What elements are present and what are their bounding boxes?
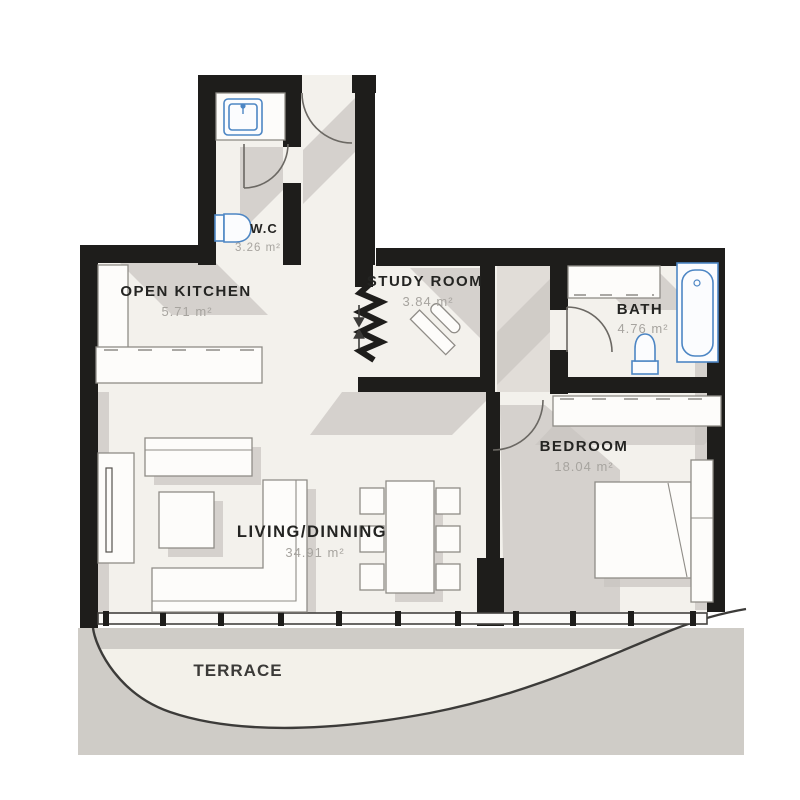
wardrobe [553,396,721,426]
dining-table [386,481,434,593]
bath-toilet-tank [632,361,658,374]
room-area-wc: 3.26 m² [235,242,281,254]
room-area-living: 34.91 m² [285,545,344,560]
room-area-bath: 4.76 m² [617,321,668,336]
room-label-living: LIVING/DINNING [237,523,387,541]
floor-plan-page: TERRACE [0,0,800,800]
floor-plan-drawing: TERRACE [0,0,800,800]
kitchen-counter-left [98,265,128,348]
toilet-icon-wc [224,214,251,242]
bed-headboard [691,460,713,602]
kitchen-counter-bottom [96,347,262,383]
room-label-study: STUDY ROOM [367,273,483,290]
sideboard [145,438,252,476]
bath-vanity [568,266,660,298]
coffee-table [159,492,214,548]
room-label-kitchen: OPEN KITCHEN [120,283,251,300]
room-label-bath: BATH [617,301,664,318]
room-area-bedroom: 18.04 m² [554,459,613,474]
room-area-study: 3.84 m² [402,294,453,309]
terrace-label: TERRACE [193,661,282,680]
terrace-area: TERRACE [78,609,746,755]
room-label-bedroom: BEDROOM [540,438,629,455]
room-label-wc: W.C [250,221,278,236]
toilet-icon-bath [635,334,655,361]
room-area-kitchen: 5.71 m² [161,304,212,319]
terrace-edge-band [78,628,744,649]
wc-toilet-tank [215,215,224,241]
tv-console [98,453,134,563]
bathtub-inner [682,270,713,356]
tv-icon [106,468,112,552]
glass-wall [98,611,707,626]
bed [595,482,691,578]
